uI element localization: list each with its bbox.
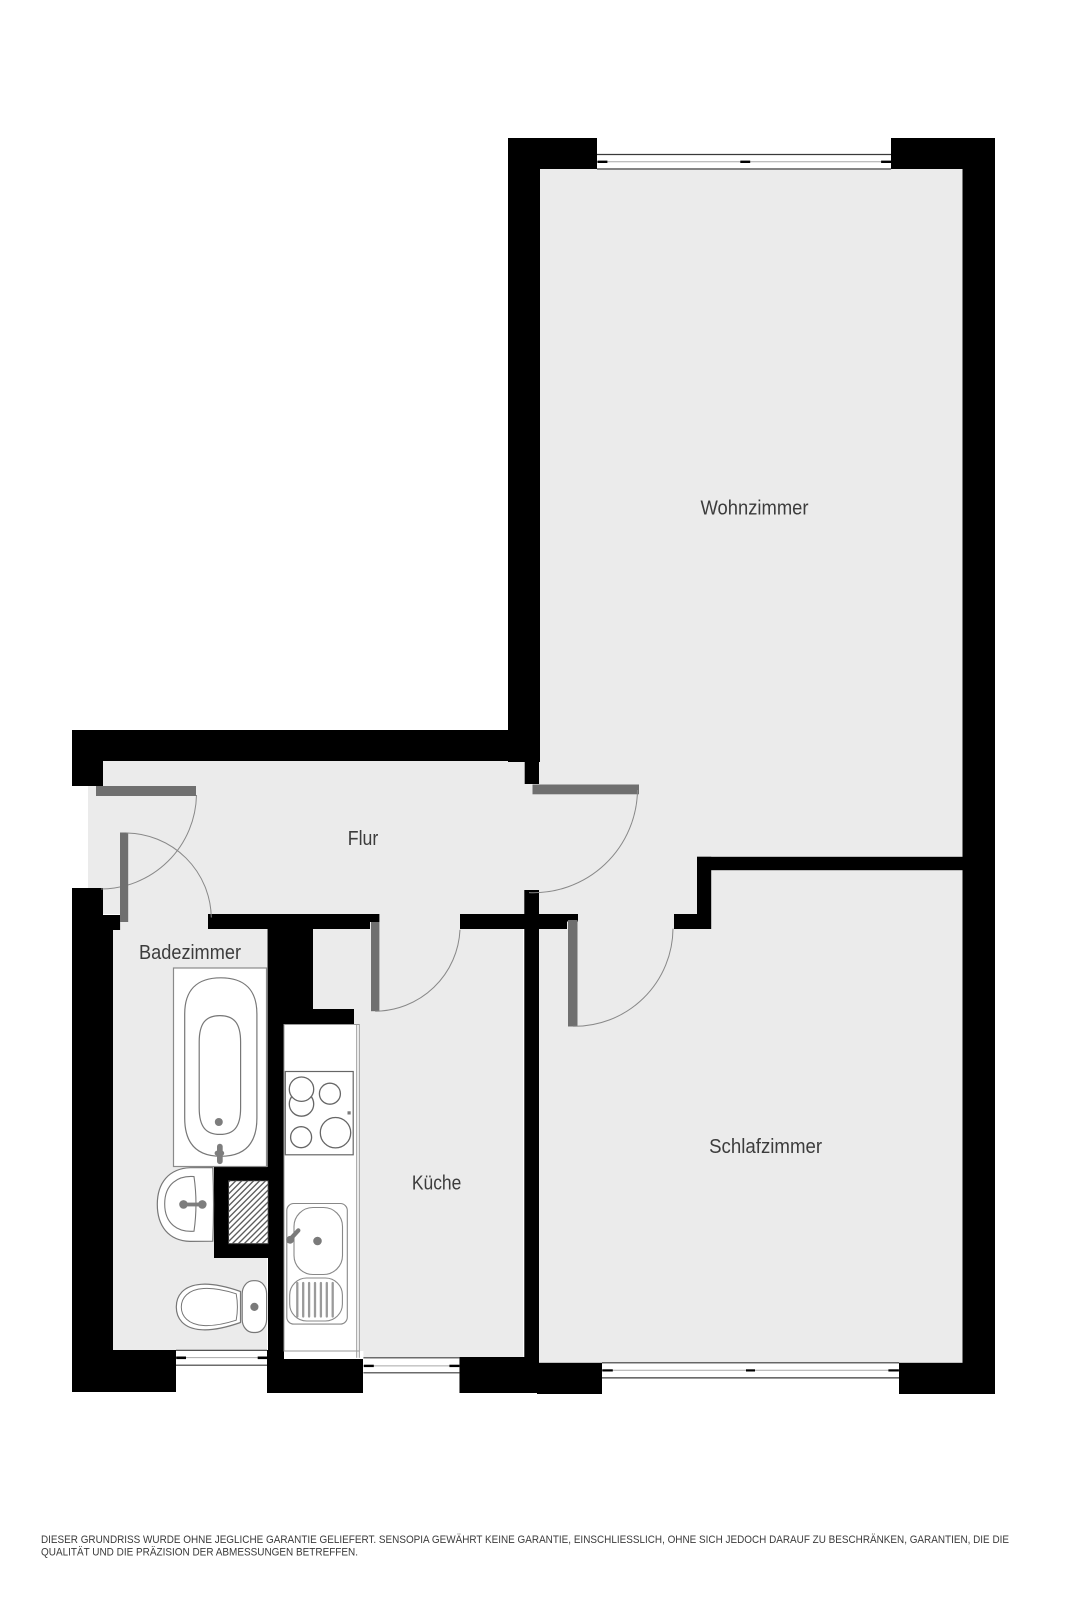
svg-text:Schlafzimmer: Schlafzimmer: [709, 1136, 822, 1158]
svg-text:Wohnzimmer: Wohnzimmer: [701, 498, 809, 520]
svg-text:DIESER GRUNDRISS WURDE OHNE JE: DIESER GRUNDRISS WURDE OHNE JEGLICHE GAR…: [41, 1534, 1009, 1546]
svg-text:Flur: Flur: [348, 828, 379, 850]
svg-text:Badezimmer: Badezimmer: [139, 942, 241, 964]
svg-text:QUALITÄT UND DIE PRÄZISION DER: QUALITÄT UND DIE PRÄZISION DER ABMESSUNG…: [41, 1546, 358, 1558]
svg-text:Küche: Küche: [412, 1173, 462, 1195]
